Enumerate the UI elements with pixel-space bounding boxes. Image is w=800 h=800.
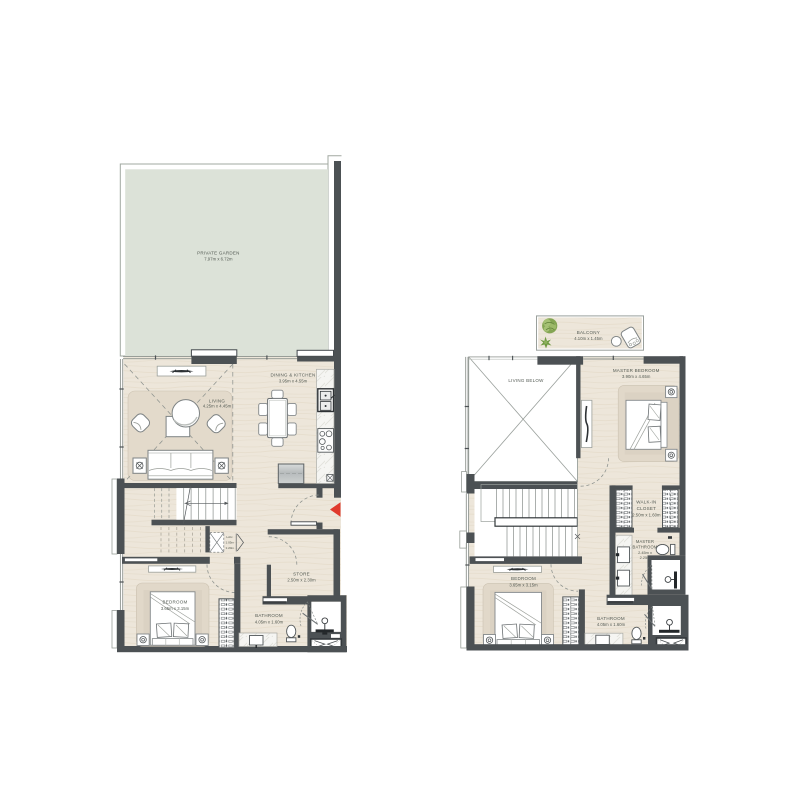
- svg-text:2.50m x 1.60m: 2.50m x 1.60m: [632, 512, 661, 517]
- svg-text:BATHROOM: BATHROOM: [597, 616, 625, 621]
- svg-text:LAU.: LAU.: [226, 535, 233, 539]
- svg-text:PRIVATE GARDEN: PRIVATE GARDEN: [197, 250, 240, 255]
- svg-text:3.90m x 4.65m: 3.90m x 4.65m: [622, 374, 651, 379]
- svg-text:BEDROOM: BEDROOM: [162, 600, 187, 605]
- svg-text:4.25m x 4.45m: 4.25m x 4.45m: [203, 403, 232, 408]
- svg-text:4.05m x 1.60m: 4.05m x 1.60m: [255, 619, 284, 624]
- svg-text:STORE: STORE: [293, 571, 310, 576]
- svg-text:1.20m: 1.20m: [225, 546, 234, 550]
- svg-text:BATHROOM: BATHROOM: [633, 545, 658, 550]
- svg-text:3.65m x 3.15m: 3.65m x 3.15m: [509, 582, 538, 587]
- svg-text:4.10m x 1.45m: 4.10m x 1.45m: [574, 336, 603, 341]
- svg-text:BEDROOM: BEDROOM: [511, 576, 536, 581]
- svg-text:3.65m x 3.15m: 3.65m x 3.15m: [161, 606, 190, 611]
- svg-text:DINING & KITCHEN: DINING & KITCHEN: [270, 372, 315, 377]
- svg-text:2.50m x 2.30m: 2.50m x 2.30m: [287, 578, 316, 583]
- svg-text:1.05m: 1.05m: [225, 541, 234, 545]
- svg-text:4.05m x 1.60m: 4.05m x 1.60m: [597, 622, 626, 627]
- svg-text:3.95m x 4.55m: 3.95m x 4.55m: [279, 379, 308, 384]
- svg-text:WALK-IN: WALK-IN: [636, 500, 656, 505]
- svg-text:CLOSET: CLOSET: [637, 506, 657, 511]
- svg-text:MASTER BEDROOM: MASTER BEDROOM: [613, 368, 660, 373]
- svg-text:BALCONY: BALCONY: [577, 330, 600, 335]
- svg-text:BATHROOM: BATHROOM: [255, 613, 283, 618]
- svg-text:LIVING BELOW: LIVING BELOW: [508, 378, 544, 383]
- svg-text:7.97m x 6.72m: 7.97m x 6.72m: [204, 256, 233, 261]
- svg-text:MASTER: MASTER: [636, 539, 654, 544]
